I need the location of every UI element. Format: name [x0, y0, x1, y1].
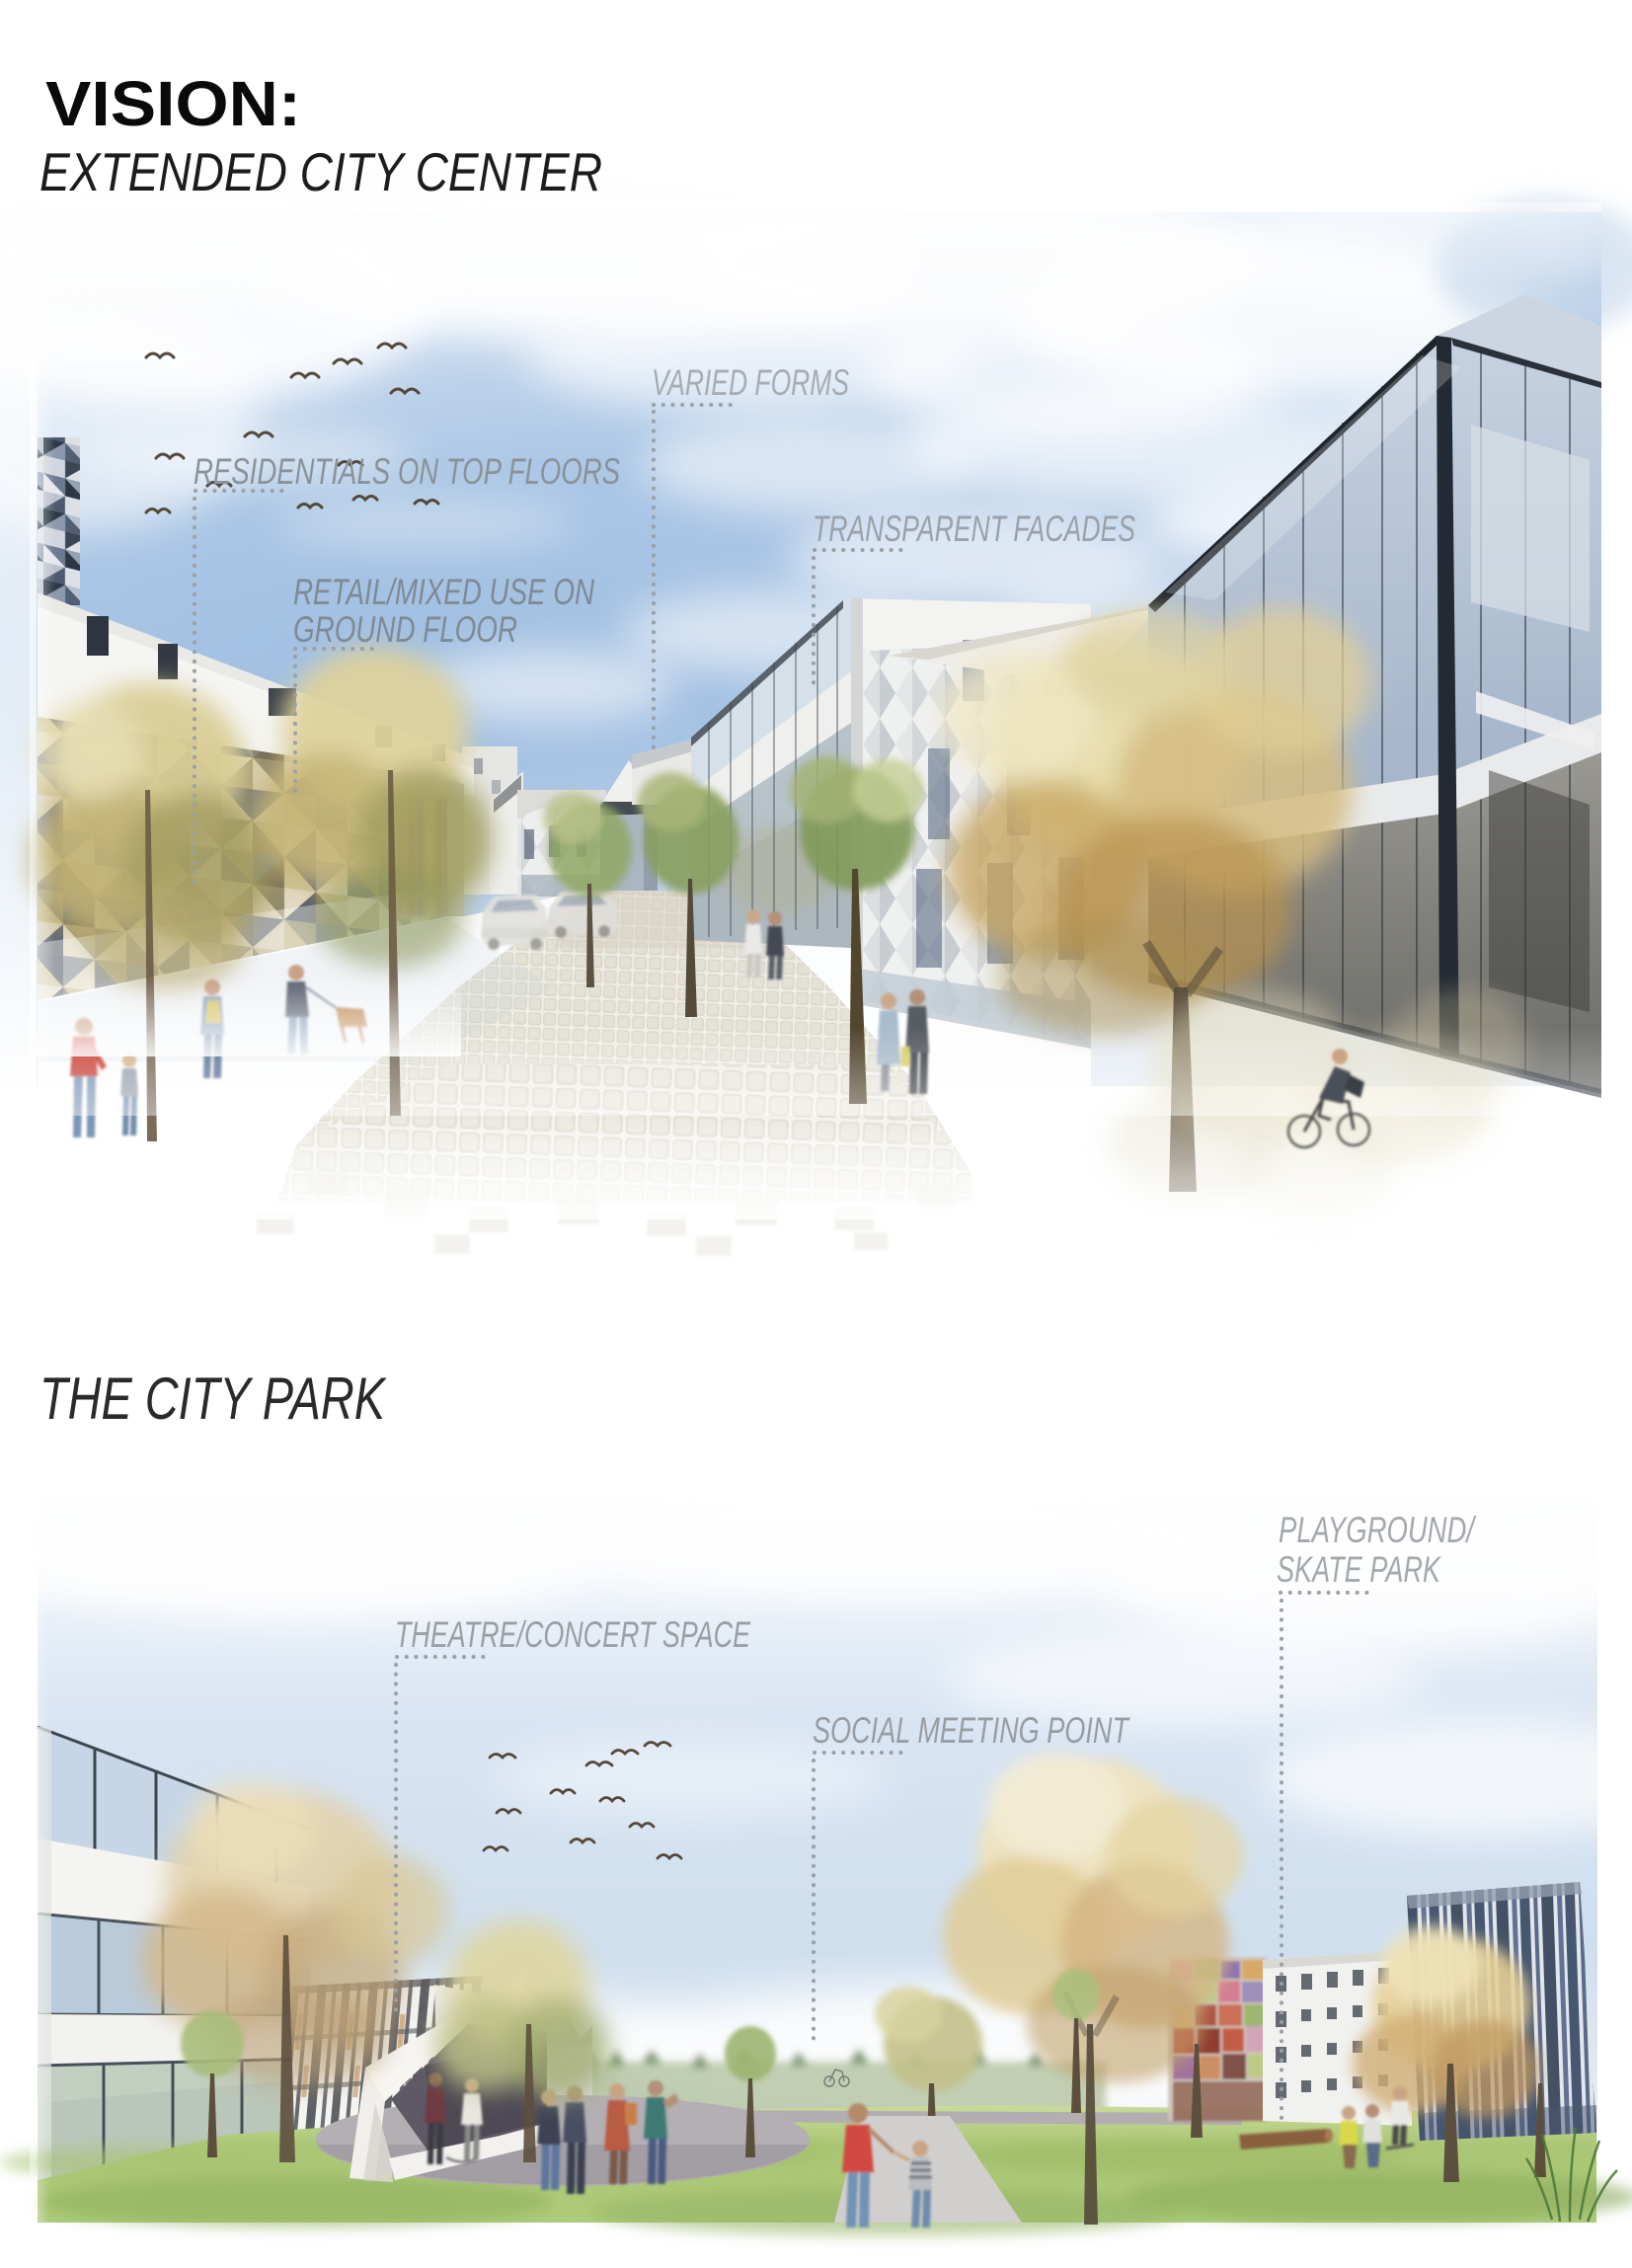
- svg-text:VARIED FORMS: VARIED FORMS: [652, 362, 849, 403]
- svg-text:SKATE PARK: SKATE PARK: [1277, 1549, 1442, 1590]
- svg-text:SOCIAL MEETING POINT: SOCIAL MEETING POINT: [813, 1710, 1130, 1751]
- svg-text:RESIDENTIALS ON TOP FLOORS: RESIDENTIALS ON TOP FLOORS: [194, 451, 620, 492]
- svg-text:EXTENDED CITY CENTER: EXTENDED CITY CENTER: [39, 141, 602, 202]
- svg-text:THE CITY PARK: THE CITY PARK: [39, 1366, 387, 1432]
- svg-text:PLAYGROUND/: PLAYGROUND/: [1279, 1510, 1477, 1550]
- svg-text:TRANSPARENT FACADES: TRANSPARENT FACADES: [813, 508, 1135, 549]
- svg-text:VISION:: VISION:: [45, 68, 301, 139]
- svg-text:GROUND FLOOR: GROUND FLOOR: [293, 609, 517, 650]
- svg-text:THEATRE/CONCERT SPACE: THEATRE/CONCERT SPACE: [395, 1614, 751, 1655]
- svg-text:RETAIL/MIXED USE ON: RETAIL/MIXED USE ON: [293, 572, 594, 612]
